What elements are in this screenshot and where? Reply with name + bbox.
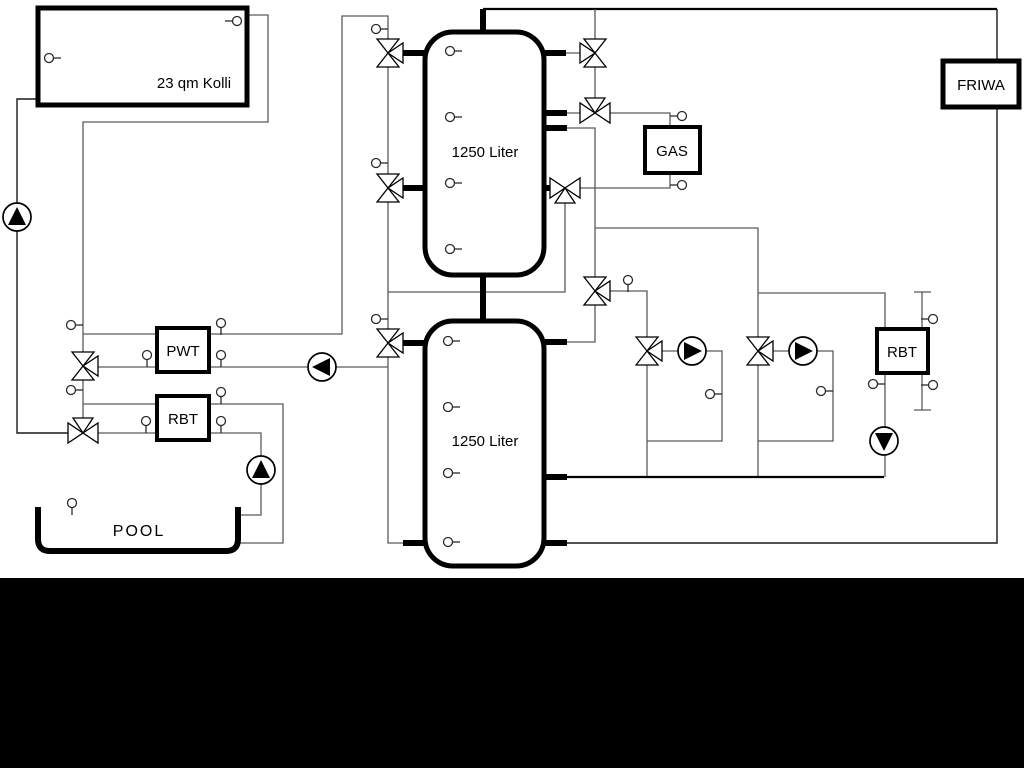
- pipe-rbt-right-supply: [758, 293, 885, 329]
- tank1-label: 1250 Liter: [452, 144, 519, 161]
- pipe-header-circuit2: [595, 228, 758, 351]
- hydraulic-schematic-page: 23 qm Kolli 1250 Liter 1250 Liter GAS FR…: [0, 0, 1024, 768]
- temperature-sensor-icon-rbtright-bottom: [921, 381, 938, 390]
- temperature-sensor-icon-pool: [68, 499, 77, 516]
- temperature-sensor-icon-pwt-right-bottom: [217, 351, 226, 368]
- temperature-sensor-icon-gas-top: [670, 112, 687, 121]
- temperature-sensor-icon-solar-1: [67, 321, 84, 330]
- temperature-sensor-icon-rbtright-return: [869, 380, 886, 389]
- temperature-sensor-icon-pwt-right-top: [217, 319, 226, 336]
- pipe-friwa-return: [567, 9, 997, 543]
- pipe-tank2-top-return: [544, 291, 595, 342]
- friwa-label: FRIWA: [957, 77, 1005, 94]
- three-way-valve-icon-gas-return: [550, 178, 580, 203]
- temperature-sensor-icon-rbtleft-left: [142, 417, 151, 434]
- temperature-sensor-icon-charge-1: [372, 25, 389, 34]
- temperature-sensor-icon-gas-bottom: [670, 181, 687, 190]
- temperature-sensor-icon-solar-2: [67, 386, 84, 395]
- pwt-label: PWT: [166, 343, 199, 360]
- temperature-sensor-icon-charge-3: [372, 315, 389, 324]
- pipe-gas-supply: [609, 113, 670, 127]
- rbt-left-label: RBT: [168, 411, 198, 428]
- temperature-sensor-icon-pwt-left: [143, 351, 152, 368]
- three-way-valve-icon-solar-pool: [68, 418, 98, 443]
- circuit2-pump-icon: [789, 337, 817, 365]
- pipe-distribution-riser: [544, 128, 595, 291]
- rbt-right-label: RBT: [887, 344, 917, 361]
- three-way-valve-icon-circuit1-mixer: [636, 337, 662, 365]
- tank2-label: 1250 Liter: [452, 433, 519, 450]
- gas-label: GAS: [656, 143, 688, 160]
- pool-label: POOL: [113, 523, 165, 540]
- temperature-sensor-icon-rbtleft-right-bottom: [217, 417, 226, 434]
- temperature-sensor-icon-circuit2: [817, 387, 834, 396]
- temperature-sensor-icon-rbtright-top: [921, 315, 938, 324]
- pipe-gas-return: [580, 173, 670, 188]
- pool-pump-icon: [247, 456, 275, 484]
- charge-pump-icon: [308, 353, 336, 381]
- three-way-valve-icon-tank1-mid: [377, 174, 403, 202]
- rbt-right-pump-icon: [870, 427, 898, 455]
- collector-label: 23 qm Kolli: [157, 75, 231, 92]
- solar-pump-icon: [3, 203, 31, 231]
- three-way-valve-icon-hot-top: [580, 39, 606, 67]
- circuit1-pump-icon: [678, 337, 706, 365]
- three-way-valve-icon-circuit2-mixer: [747, 337, 773, 365]
- temperature-sensor-icon-charge-2: [372, 159, 389, 168]
- three-way-valve-icon-tank2: [377, 329, 403, 357]
- pipe-pool-hx-bottom: [83, 433, 261, 515]
- three-way-valve-icon-tank1-top: [377, 39, 403, 67]
- temperature-sensor-icon-distribution: [624, 276, 633, 293]
- temperature-sensor-icon-rbtleft-right-top: [217, 388, 226, 405]
- three-way-valve-icon-gas-supply: [580, 98, 610, 123]
- pipe-solar-return: [17, 99, 83, 433]
- black-bottom-band: [0, 578, 1024, 768]
- three-way-valve-icon-solar-pwt: [72, 352, 98, 380]
- temperature-sensor-icon-circuit1: [706, 390, 723, 399]
- three-way-valve-icon-distribution: [584, 277, 610, 305]
